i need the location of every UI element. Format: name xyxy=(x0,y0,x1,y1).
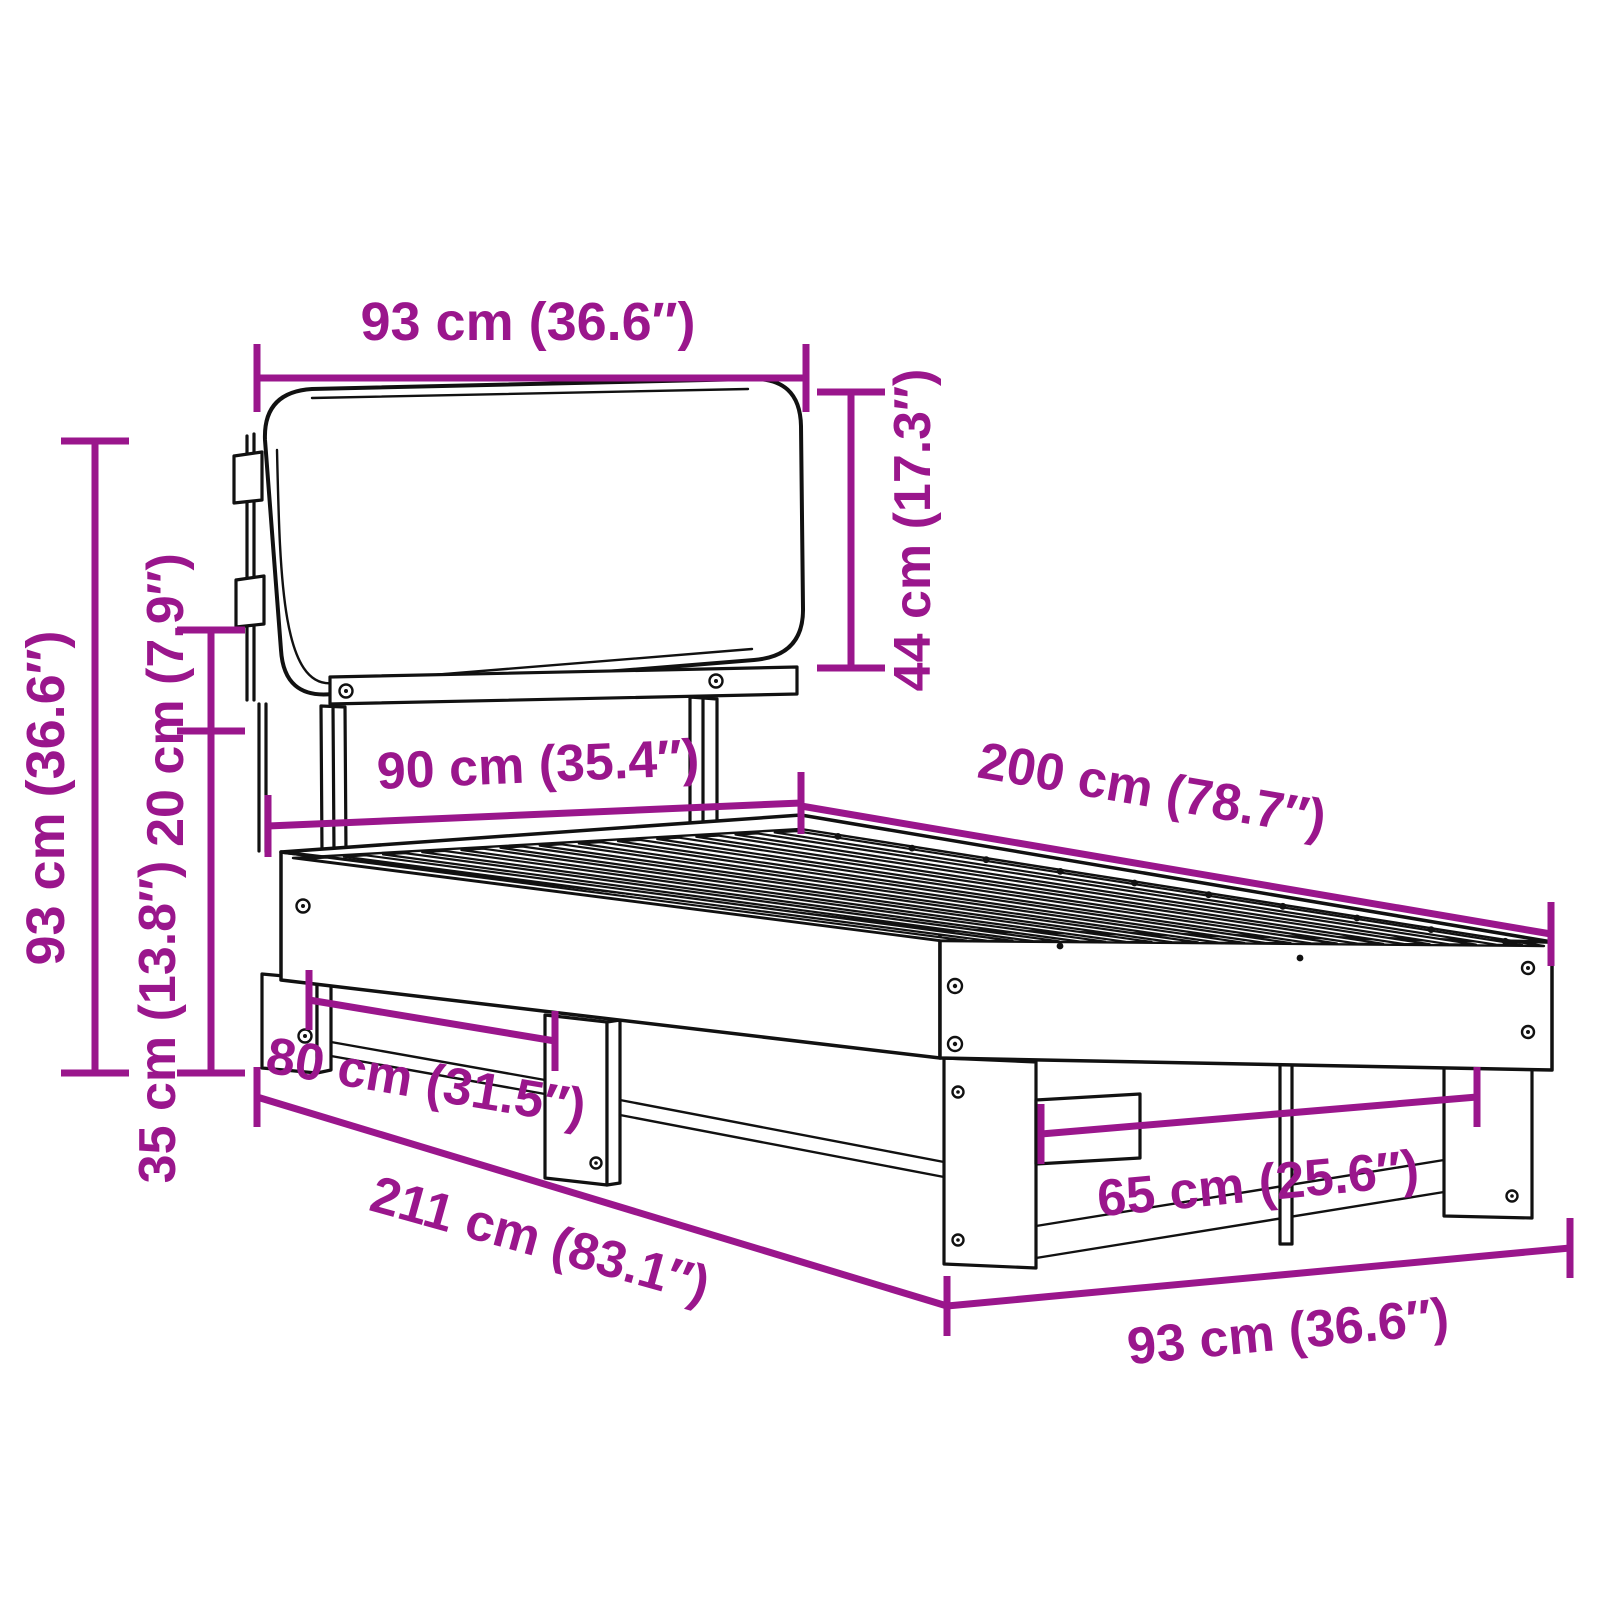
slat-screw xyxy=(1502,938,1509,945)
foot-panel-screw-3-dot xyxy=(1526,966,1530,970)
dim-label-headboard-height: 44 cm (17.3″) xyxy=(884,369,942,692)
foot-panel-screw-2-dot xyxy=(953,1042,957,1046)
front-rail-screw-1-dot xyxy=(301,904,305,908)
foot-panel-pin-1 xyxy=(1057,943,1064,950)
slat-screw xyxy=(1354,915,1361,922)
slat-screw xyxy=(835,833,842,840)
mid-front-leg-side xyxy=(607,1020,620,1185)
headboard-bracket-lower xyxy=(236,576,264,627)
rail-screw-left-dot xyxy=(344,689,348,693)
bed-frame-dimension-diagram: 93 cm (36.6″) 44 cm (17.3″) 93 cm (36.6″… xyxy=(0,0,1600,1600)
foot-right-leg xyxy=(1444,1050,1532,1218)
headboard-bracket-upper xyxy=(234,452,262,503)
foot-panel-pin-2 xyxy=(1297,955,1304,962)
slat-screw xyxy=(909,845,916,852)
dim-label-headboard-width: 93 cm (36.6″) xyxy=(360,292,695,352)
headboard-cushion xyxy=(265,379,803,695)
foot-panel-screw-1-dot xyxy=(953,984,957,988)
slat-screw xyxy=(1428,926,1435,933)
diagram-canvas: 93 cm (36.6″) 44 cm (17.3″) 93 cm (36.6″… xyxy=(0,0,1600,1600)
slat-screw xyxy=(983,856,990,863)
dim-label-headboard-overlap: 20 cm (7.9″) xyxy=(137,553,195,847)
foot-panel-face xyxy=(940,930,1552,1070)
foot-panel-screw-4-dot xyxy=(1526,1030,1530,1034)
slat-screw xyxy=(1057,868,1064,875)
dim-label-overall-height: 93 cm (36.6″) xyxy=(16,630,76,965)
slat-screw xyxy=(1131,880,1138,887)
mid-leg-screw-dot xyxy=(594,1161,598,1165)
foot-front-leg-screw-1-dot xyxy=(956,1090,960,1094)
slat-screw xyxy=(1279,903,1286,910)
dim-label-frame-height: 35 cm (13.8″) xyxy=(129,861,187,1184)
rail-screw-right-dot xyxy=(714,679,718,683)
foot-front-leg-screw-2-dot xyxy=(956,1238,960,1242)
foot-right-leg-screw-dot xyxy=(1510,1194,1514,1198)
slat-screw xyxy=(1205,891,1212,898)
